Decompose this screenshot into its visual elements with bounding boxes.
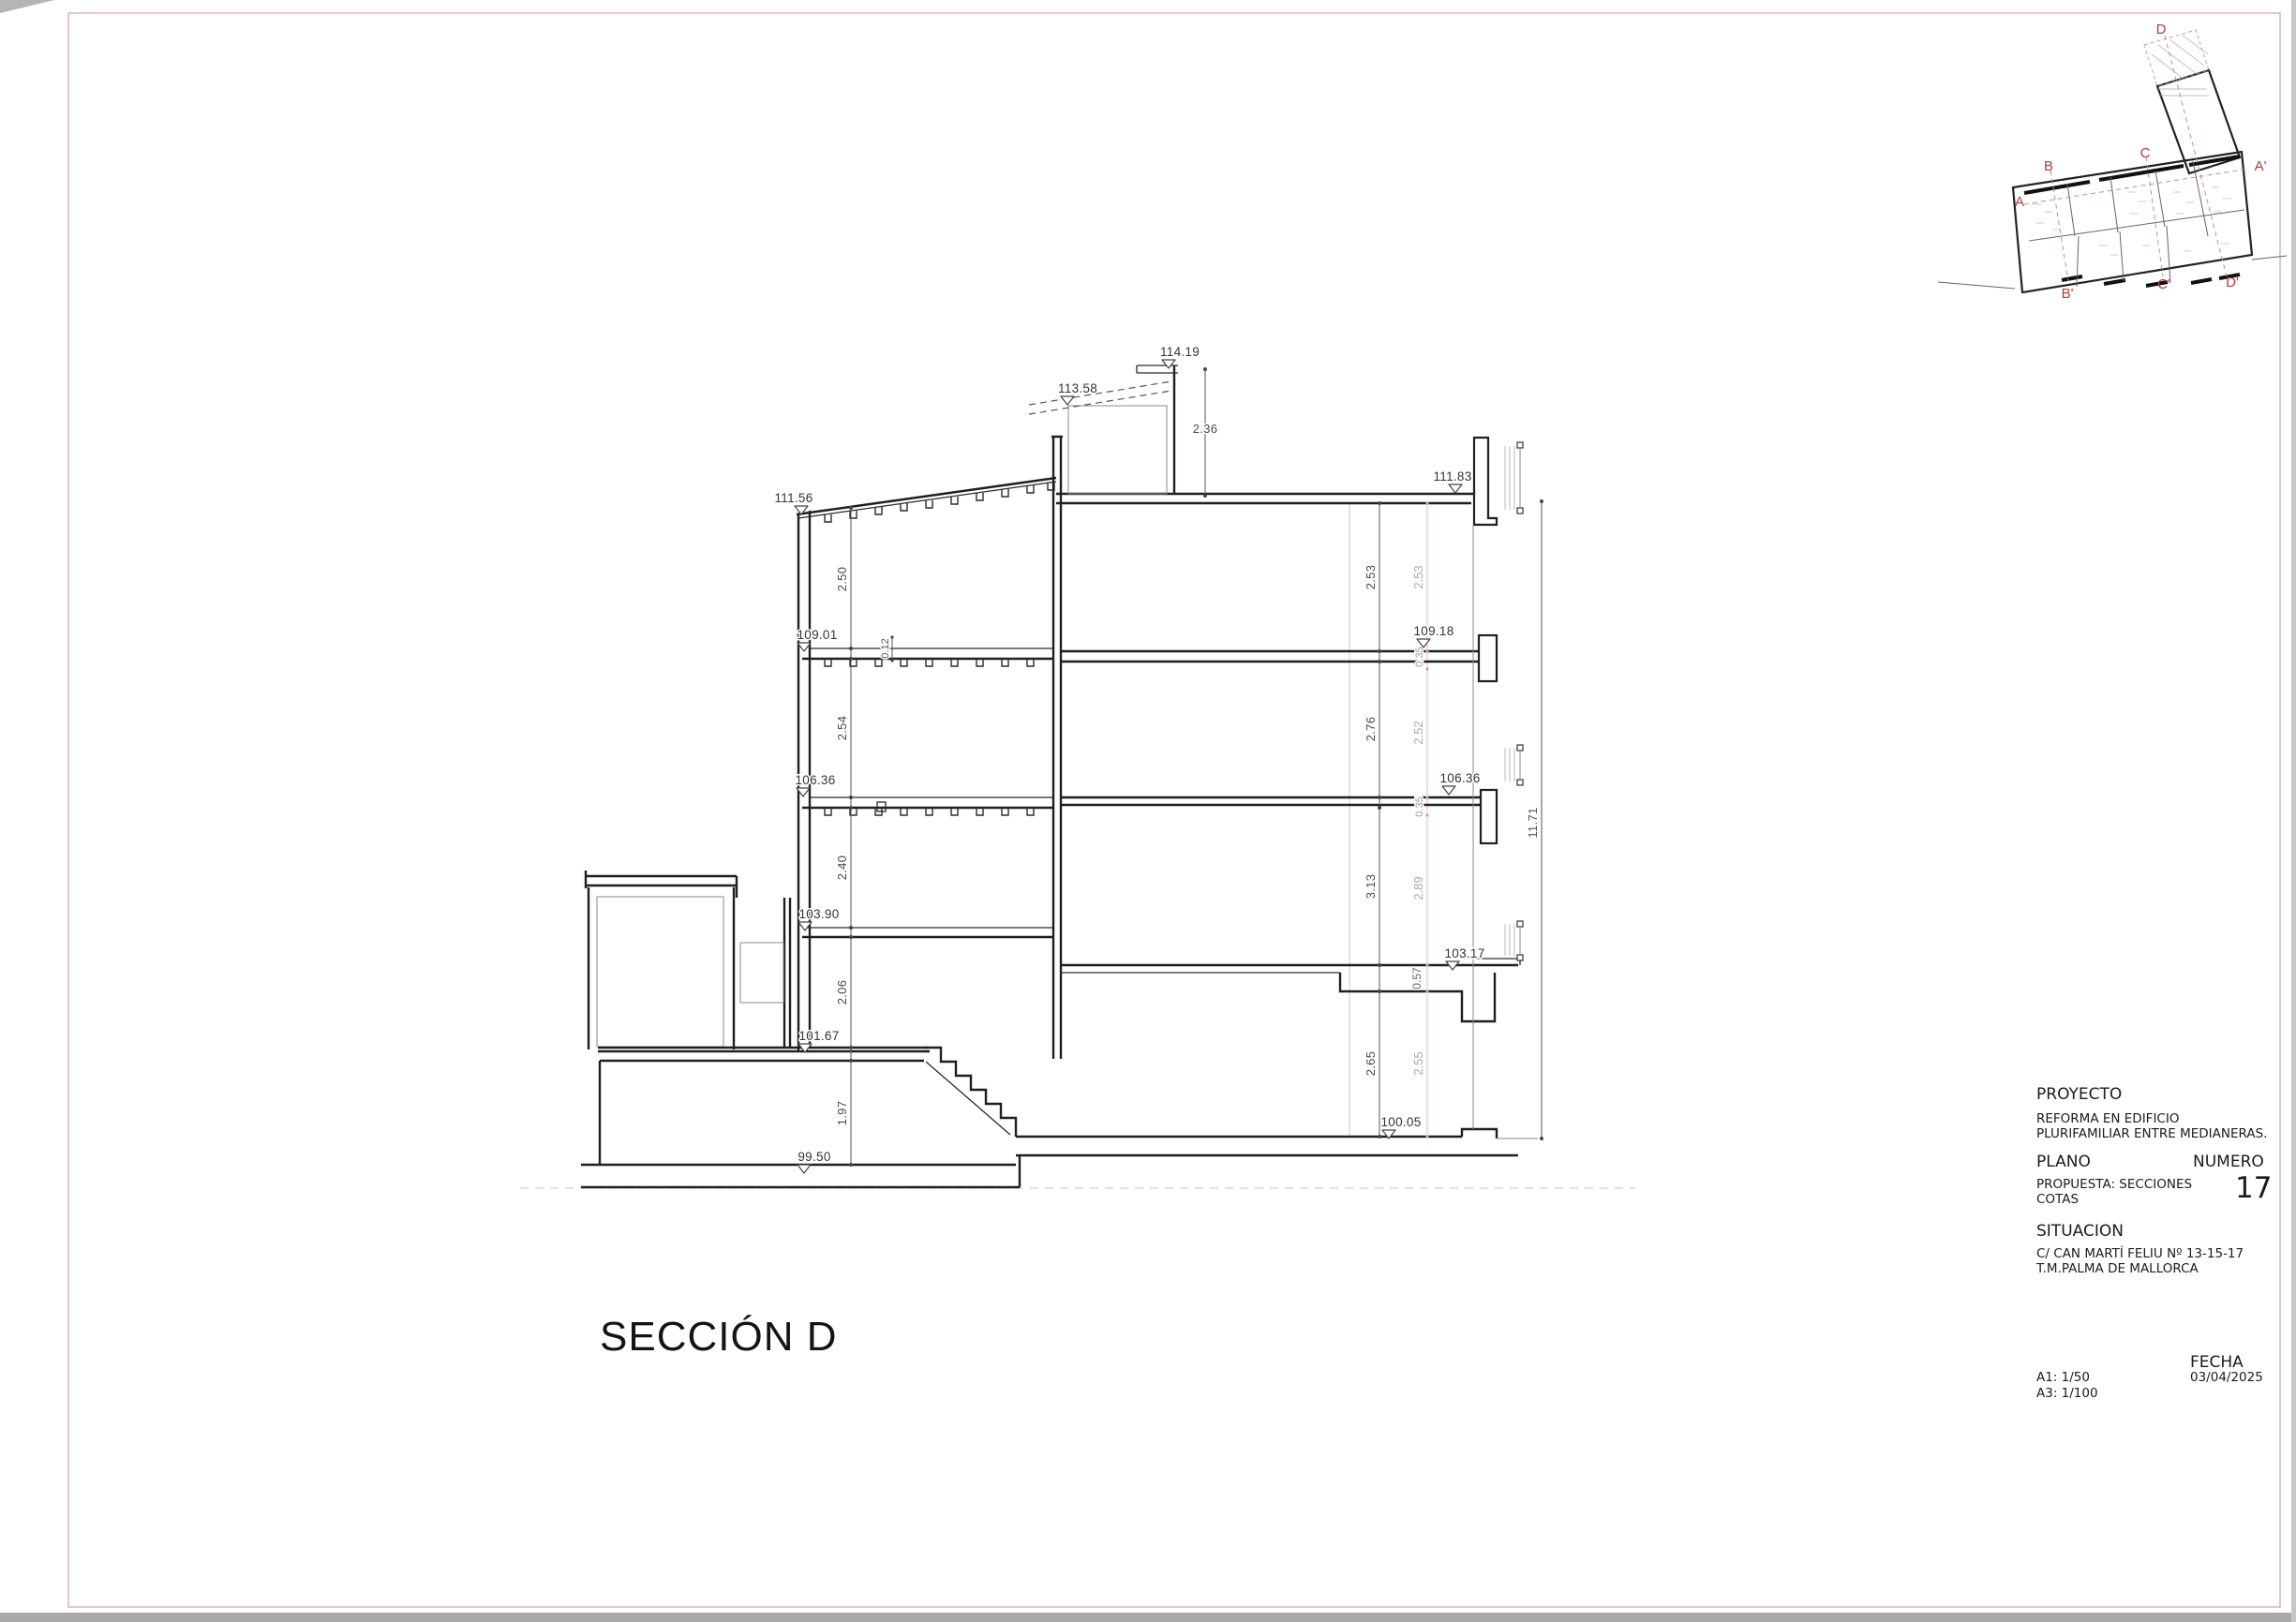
level-markers: 114.19 113.58 111.56 111.83 109.01 109.1… <box>774 345 1484 1173</box>
ground-left-slab <box>598 1048 930 1051</box>
numero-value: 17 <box>2235 1171 2272 1205</box>
situacion-line1: C/ CAN MARTÍ FELIU Nº 13-15-17 <box>2036 1246 2244 1261</box>
svg-text:106.36: 106.36 <box>795 773 835 787</box>
section-marker-a-prime: A' <box>2255 158 2267 174</box>
level-floor3-left: 109.01 <box>797 628 837 651</box>
escala-a3: A3: 1/100 <box>2036 1386 2098 1401</box>
proyecto-line1: REFORMA EN EDIFICIO <box>2036 1111 2179 1126</box>
dim-slab3: 0.35 <box>1414 647 1425 666</box>
plano-line2: COTAS <box>2036 1192 2079 1207</box>
section-marker-d: D <box>2156 22 2167 37</box>
svg-text:114.19: 114.19 <box>1160 345 1200 359</box>
proyecto-label: PROYECTO <box>2036 1085 2122 1104</box>
sheet: 2.50 2.54 2.40 2.06 1.97 0.12 2.36 2.53 … <box>0 0 2296 1622</box>
level-floor1-right: 103.17 <box>1444 946 1484 970</box>
dim-room3-left: 2.50 <box>835 567 849 592</box>
section-marker-c: C <box>2140 145 2151 161</box>
dim-basement-left: 1.97 <box>835 1101 849 1126</box>
dim-ground-right-b: 2.55 <box>1411 1051 1425 1075</box>
svg-text:99.50: 99.50 <box>798 1150 830 1164</box>
patio-door <box>740 943 783 1003</box>
fecha-value: 03/04/2025 <box>2190 1370 2263 1385</box>
section-marker-d-prime: D' <box>2226 275 2239 290</box>
dim-ground-right: 2.65 <box>1364 1051 1378 1077</box>
dim-room2-left: 2.54 <box>835 716 849 741</box>
level-ground-left-upper: 101.67 <box>798 1029 840 1052</box>
level-floor3-right: 109.18 <box>1413 624 1454 647</box>
floor3-right-slab <box>1061 635 1497 681</box>
svg-text:111.83: 111.83 <box>1433 469 1471 484</box>
fecha-label: FECHA <box>2190 1353 2244 1372</box>
level-floor2-right: 106.36 <box>1439 771 1480 795</box>
dimension-total-height: 11.71 <box>1526 499 1543 1140</box>
svg-text:113.58: 113.58 <box>1058 381 1097 395</box>
dimension-column-left: 2.50 2.54 2.40 2.06 1.97 <box>835 506 853 1167</box>
level-ground-right: 100.05 <box>1380 1115 1421 1138</box>
escala-a1: A1: 1/50 <box>2036 1370 2090 1385</box>
key-plan: A B C D A' B' C' D' <box>1938 22 2287 302</box>
section-marker-b: B <box>2044 158 2053 174</box>
dim-room1-left: 2.40 <box>835 856 849 881</box>
svg-text:111.56: 111.56 <box>774 491 813 505</box>
dimension-column-right: 2.53 2.76 3.13 2.65 <box>1364 501 1381 1138</box>
floor3-left-slab <box>802 648 1053 666</box>
section-marker-c-prime: C' <box>2157 276 2170 292</box>
paper-corner-shadow <box>0 0 54 13</box>
sheet-frame <box>68 13 2280 1607</box>
dimension-bulkhead: 2.36 <box>1193 367 1218 498</box>
level-top: 114.19 <box>1160 345 1200 368</box>
section-title: SECCIÓN D <box>600 1314 837 1361</box>
level-roof-back: 113.58 <box>1058 381 1097 405</box>
flat-roof <box>1056 438 1497 525</box>
situacion-label: SITUACION <box>2036 1222 2124 1241</box>
situacion-line2: T.M.PALMA DE MALLORCA <box>2036 1261 2199 1276</box>
svg-text:103.17: 103.17 <box>1444 946 1484 960</box>
key-plan-section-lines <box>2024 36 2249 281</box>
floor2-left-slab <box>802 797 1053 815</box>
section-marker-b-prime: B' <box>2062 286 2074 302</box>
section-drawing: 2.50 2.54 2.40 2.06 1.97 0.12 2.36 2.53 … <box>520 345 1635 1188</box>
dim-room2-right-b: 2.52 <box>1411 721 1425 744</box>
key-plan-hatch <box>2032 187 2231 255</box>
svg-text:101.67: 101.67 <box>798 1029 839 1043</box>
dim-room3-right: 2.53 <box>1364 565 1378 590</box>
plano-line1: PROPUESTA: SECCIONES <box>2036 1177 2192 1192</box>
floor2-railing <box>1505 745 1523 785</box>
svg-text:100.05: 100.05 <box>1380 1115 1421 1129</box>
floor1-left-slab <box>802 928 1053 937</box>
svg-text:103.90: 103.90 <box>798 907 839 921</box>
right-facade <box>1473 442 1523 1129</box>
level-street: 99.50 <box>798 1150 831 1173</box>
numero-label: NUMERO <box>2193 1153 2264 1171</box>
annex-building <box>586 871 790 1049</box>
svg-text:109.18: 109.18 <box>1413 624 1454 638</box>
dim-room2-right: 2.76 <box>1364 717 1378 742</box>
roof-bulkhead <box>1029 365 1178 494</box>
drawing-canvas: 2.50 2.54 2.40 2.06 1.97 0.12 2.36 2.53 … <box>0 0 2296 1622</box>
ground-slabs <box>581 1129 1538 1187</box>
dim-room3-right-b: 2.53 <box>1411 565 1425 588</box>
dim-slab2: 0.35 <box>1414 796 1425 816</box>
level-floor1-left: 103.90 <box>798 907 840 930</box>
dim-ground-left: 2.06 <box>835 980 849 1005</box>
level-roof-left: 111.56 <box>774 491 813 514</box>
porch-and-stairs <box>600 1048 1016 1165</box>
proyecto-line2: PLURIFAMILIAR ENTRE MEDIANERAS. <box>2036 1126 2267 1141</box>
svg-text:106.36: 106.36 <box>1439 771 1480 785</box>
dim-joist-depth: 0.12 <box>880 638 891 658</box>
dim-room1-right-b: 2.89 <box>1411 876 1425 900</box>
roof-railing <box>1505 442 1523 513</box>
dim-bulkhead-height: 2.36 <box>1193 422 1218 436</box>
dimension-column-cutline: 2.53 0.35 2.52 0.35 2.89 0.57 2.55 <box>1410 501 1429 1138</box>
paper-right-shadow <box>2291 0 2296 1622</box>
svg-text:109.01: 109.01 <box>797 628 837 642</box>
level-roof-right: 111.83 <box>1433 469 1471 493</box>
key-plan-patio-hatch <box>2144 30 2209 96</box>
paper-bottom-shadow <box>0 1613 2296 1622</box>
floor1-railing <box>1505 921 1523 960</box>
plano-label: PLANO <box>2036 1153 2091 1171</box>
dim-total-height: 11.71 <box>1526 807 1540 838</box>
dim-room1-right: 3.13 <box>1364 874 1378 900</box>
floor2-right-slab <box>1061 790 1497 843</box>
dim-slab1: 0.57 <box>1410 967 1424 990</box>
section-marker-a: A <box>2015 194 2024 210</box>
level-floor2-left: 106.36 <box>795 773 835 796</box>
key-plan-walls <box>2024 156 2240 286</box>
sloped-roof <box>797 478 1056 522</box>
